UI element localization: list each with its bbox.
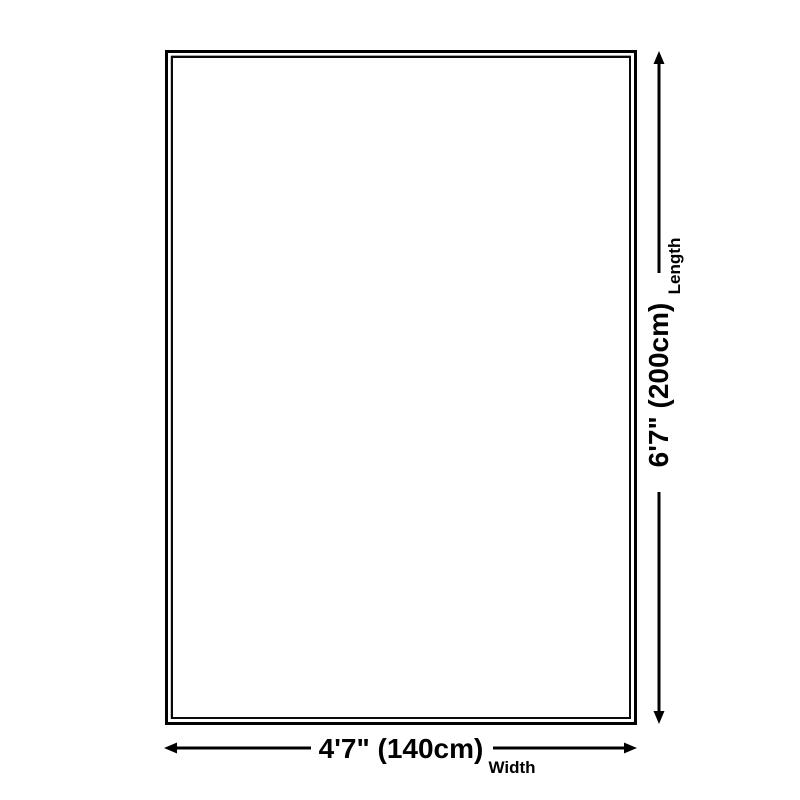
arrow-left-icon — [164, 743, 177, 754]
width-dimension-value: 4'7" (140cm) — [319, 733, 484, 764]
length-dimension-arrow: 6'7" (200cm) Length — [643, 51, 684, 724]
dimension-arrows-layer: 6'7" (200cm) Length 4'7" (140cm) Width — [0, 0, 800, 800]
size-diagram: 6'7" (200cm) Length 4'7" (140cm) Width — [0, 0, 800, 800]
length-dimension-label: Length — [665, 238, 684, 295]
arrow-right-icon — [624, 743, 637, 754]
arrow-down-icon — [654, 711, 665, 724]
length-dimension-value: 6'7" (200cm) — [643, 303, 674, 468]
width-dimension-arrow: 4'7" (140cm) Width — [164, 733, 637, 777]
width-dimension-label: Width — [488, 758, 535, 777]
